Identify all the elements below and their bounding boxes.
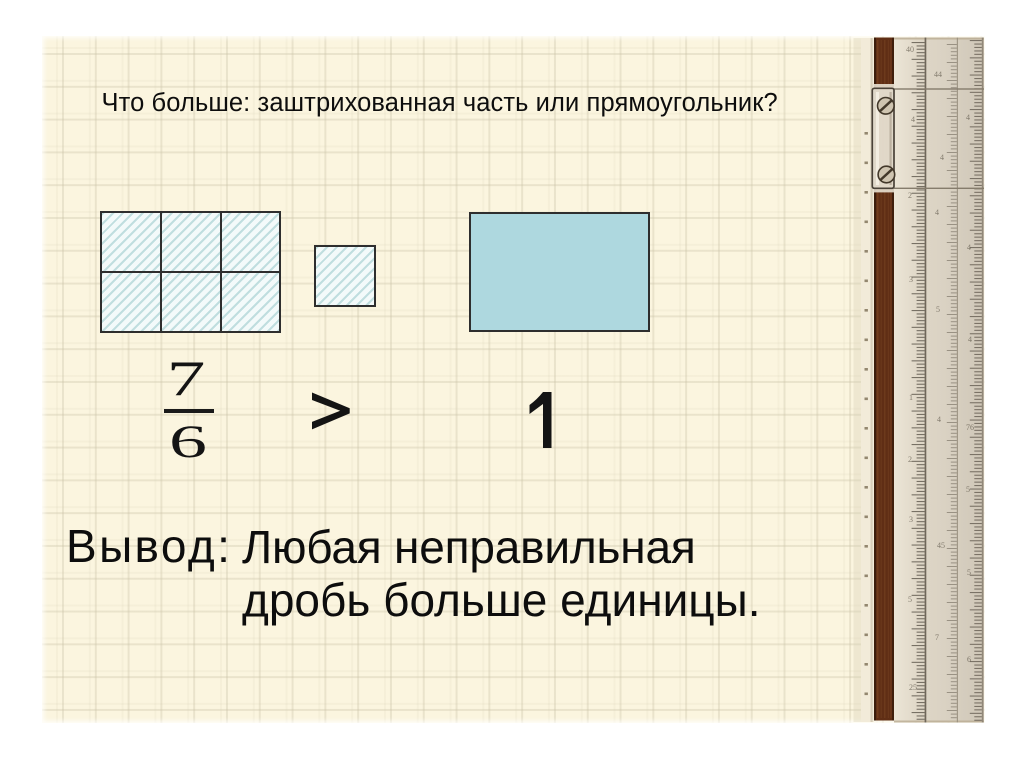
svg-text:76: 76 (966, 423, 974, 432)
svg-text:7: 7 (935, 633, 939, 642)
svg-text:5: 5 (936, 305, 940, 314)
svg-text:40: 40 (906, 45, 914, 54)
svg-text:45: 45 (937, 541, 945, 550)
svg-text:3: 3 (909, 515, 913, 524)
svg-text:1: 1 (909, 393, 913, 402)
svg-text:4: 4 (967, 243, 971, 252)
svg-text:4: 4 (940, 153, 944, 162)
svg-text:4: 4 (937, 415, 941, 424)
svg-text:25: 25 (909, 683, 917, 692)
svg-text:4: 4 (966, 113, 970, 122)
svg-text:2: 2 (908, 191, 912, 200)
svg-text:5: 5 (908, 595, 912, 604)
svg-text:44: 44 (934, 70, 942, 79)
svg-text:3: 3 (909, 275, 913, 284)
svg-text:4: 4 (935, 208, 939, 217)
svg-text:5: 5 (966, 485, 970, 494)
svg-text:4: 4 (911, 115, 915, 124)
svg-text:5: 5 (967, 568, 971, 577)
svg-text:4: 4 (968, 335, 972, 344)
svg-text:6: 6 (967, 655, 971, 664)
svg-text:2: 2 (908, 455, 912, 464)
